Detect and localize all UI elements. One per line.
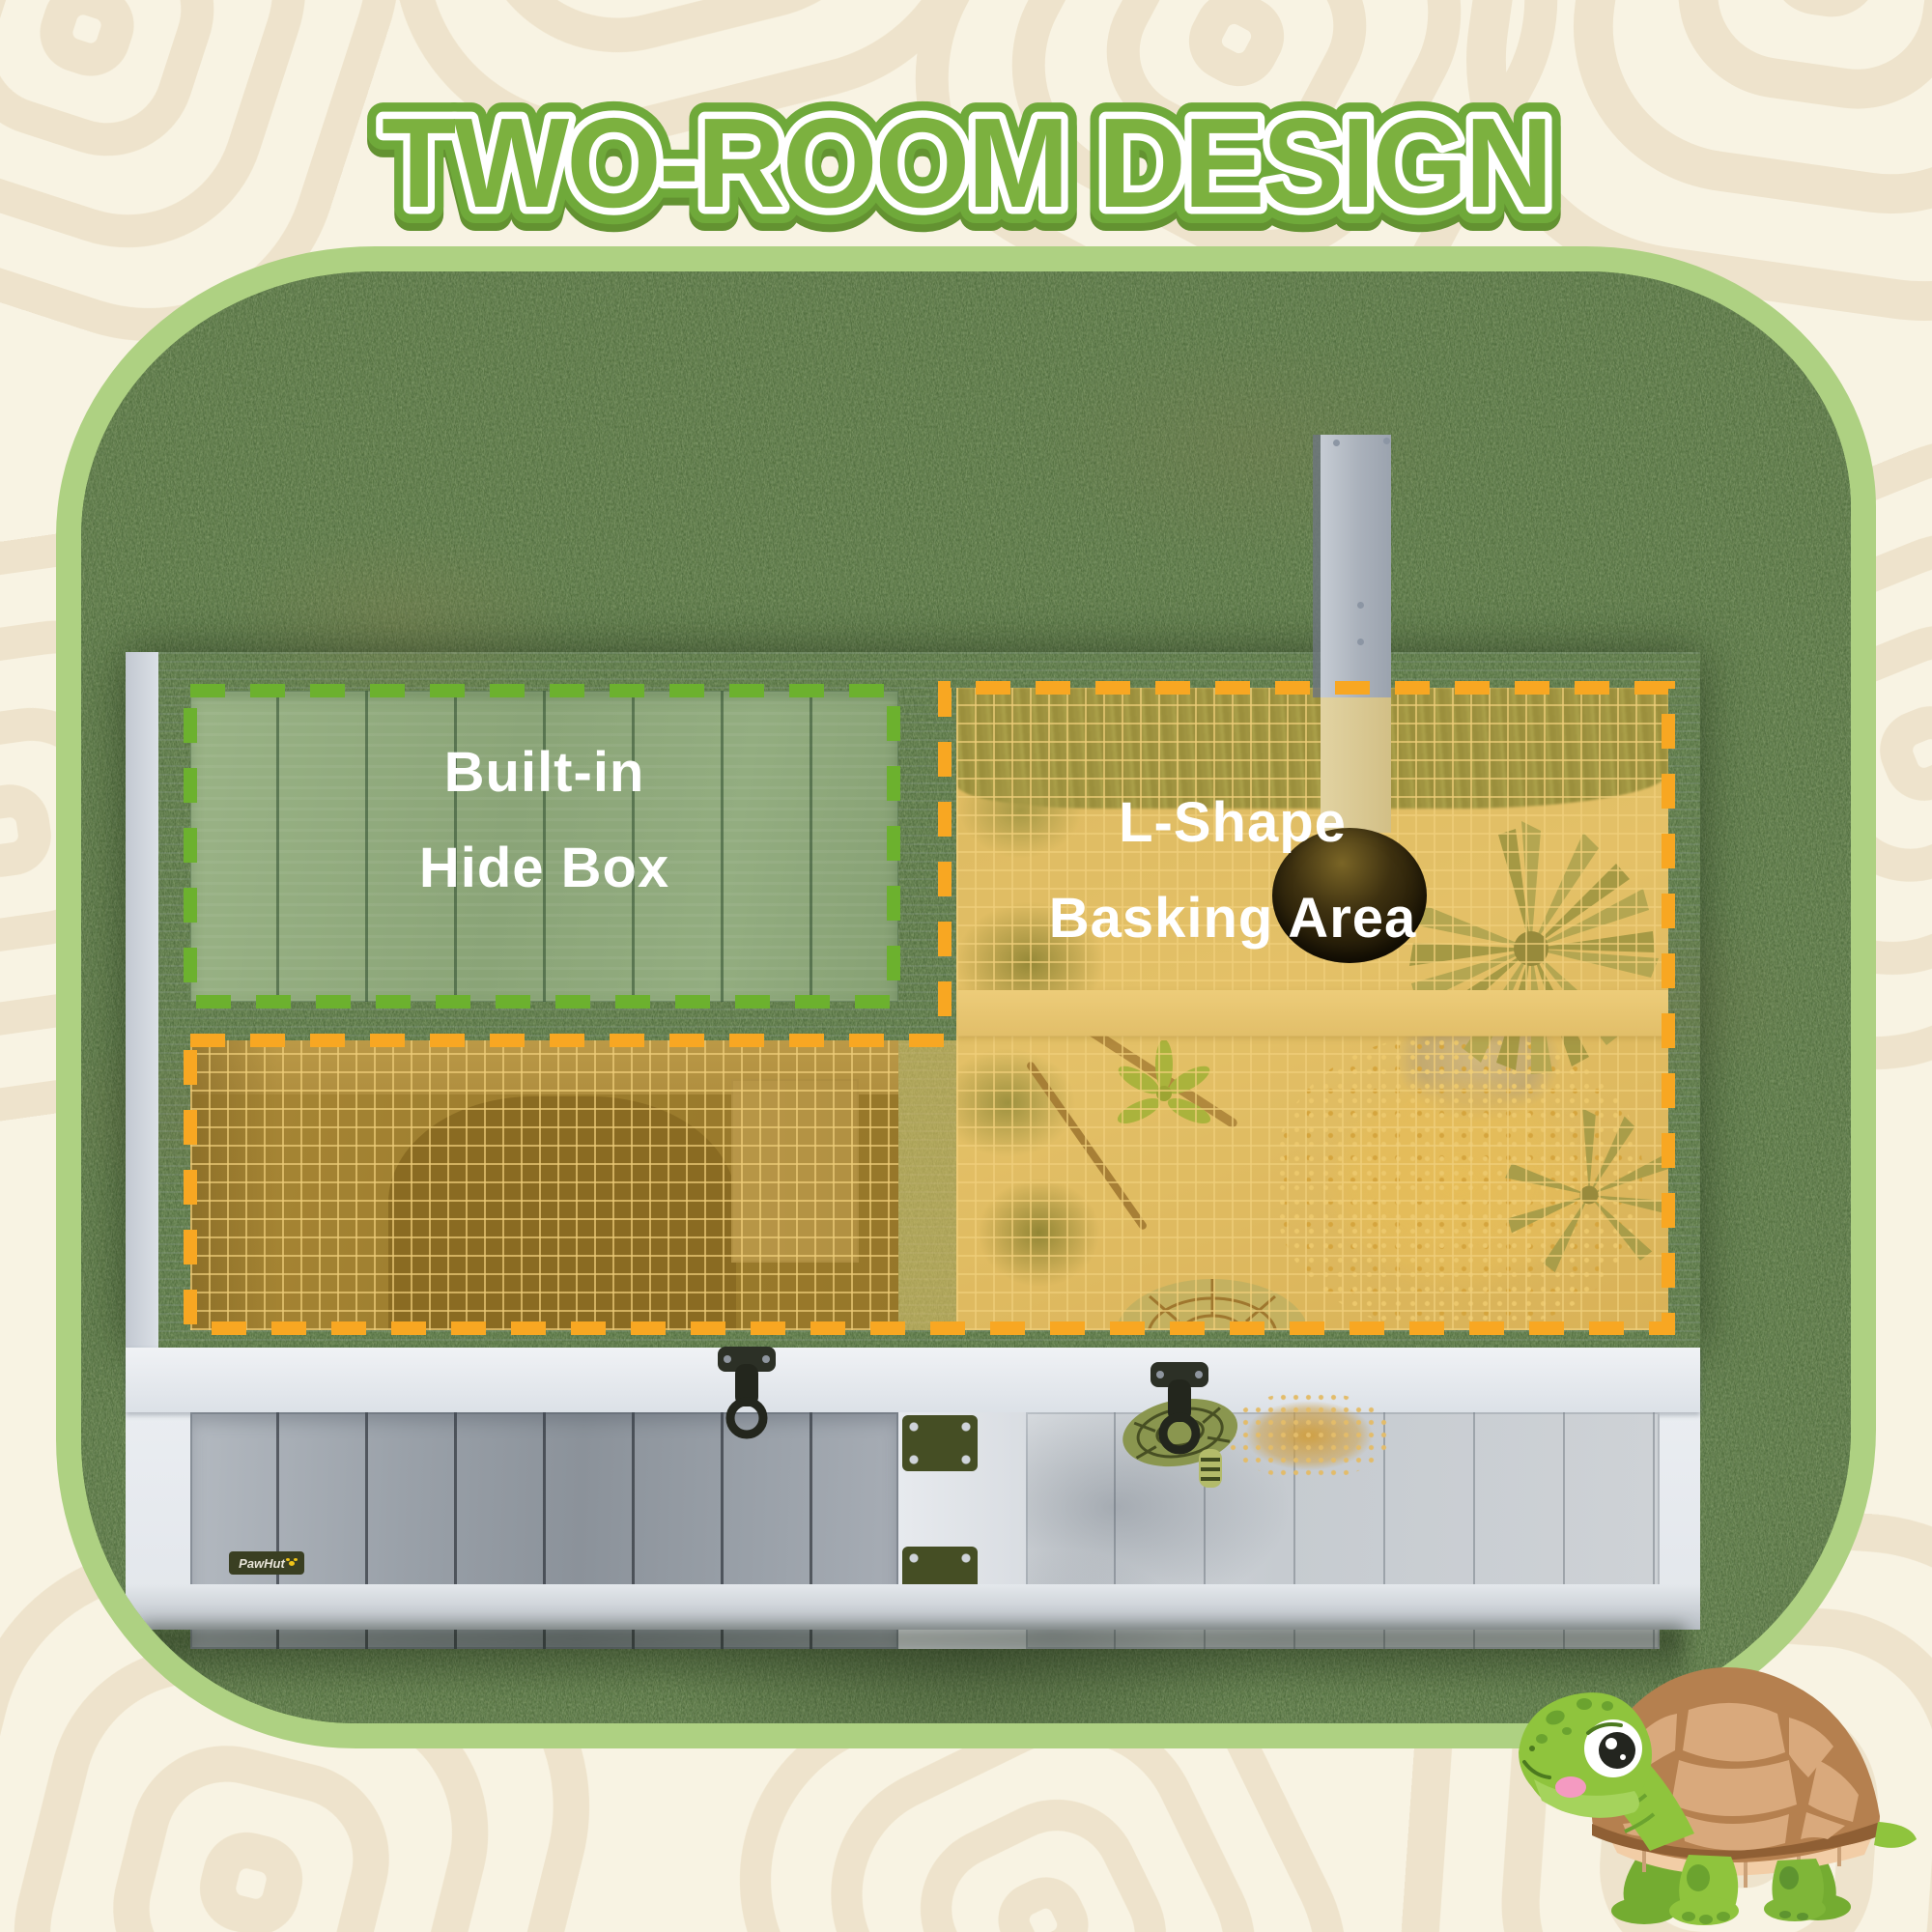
hutch-front-panel: PawHut (126, 1348, 1700, 1630)
fallen-leaves (1227, 1391, 1391, 1480)
screw-icons (1333, 440, 1340, 446)
latch-icon (1145, 1360, 1214, 1461)
paw-icon (289, 1561, 295, 1566)
latch-icon (712, 1345, 781, 1445)
page-title: TWO-ROOM DESIGN TWO-ROOM DESIGN TWO-ROOM… (251, 68, 1681, 261)
hinge-plate-icon (902, 1415, 978, 1471)
front-bottom-rail (126, 1584, 1700, 1630)
front-top-rail (126, 1348, 1700, 1412)
turtle-mascot (1499, 1625, 1932, 1932)
basking-label-line2: Basking Area (875, 871, 1590, 967)
hide-box-label: Built-in Hide Box (190, 725, 898, 916)
brand-badge: PawHut (229, 1551, 304, 1575)
title-text: TWO-ROOM DESIGN (382, 92, 1550, 234)
hide-box-label-line2: Hide Box (190, 821, 898, 917)
basking-label-line1: L-Shape (875, 776, 1590, 871)
heat-lamp-post (1321, 435, 1391, 697)
brand-badge-text: PawHut (239, 1556, 285, 1571)
hutch-left-side-face (126, 652, 158, 1350)
basking-area-label: L-Shape Basking Area (875, 776, 1590, 966)
ground-shadow (139, 1626, 1685, 1693)
left-run-mesh-panel (190, 1040, 898, 1330)
hide-box-label-line1: Built-in (190, 725, 898, 821)
photo-frame: PawHut Built-in Hide Box L-Shape Basking… (56, 246, 1876, 1748)
